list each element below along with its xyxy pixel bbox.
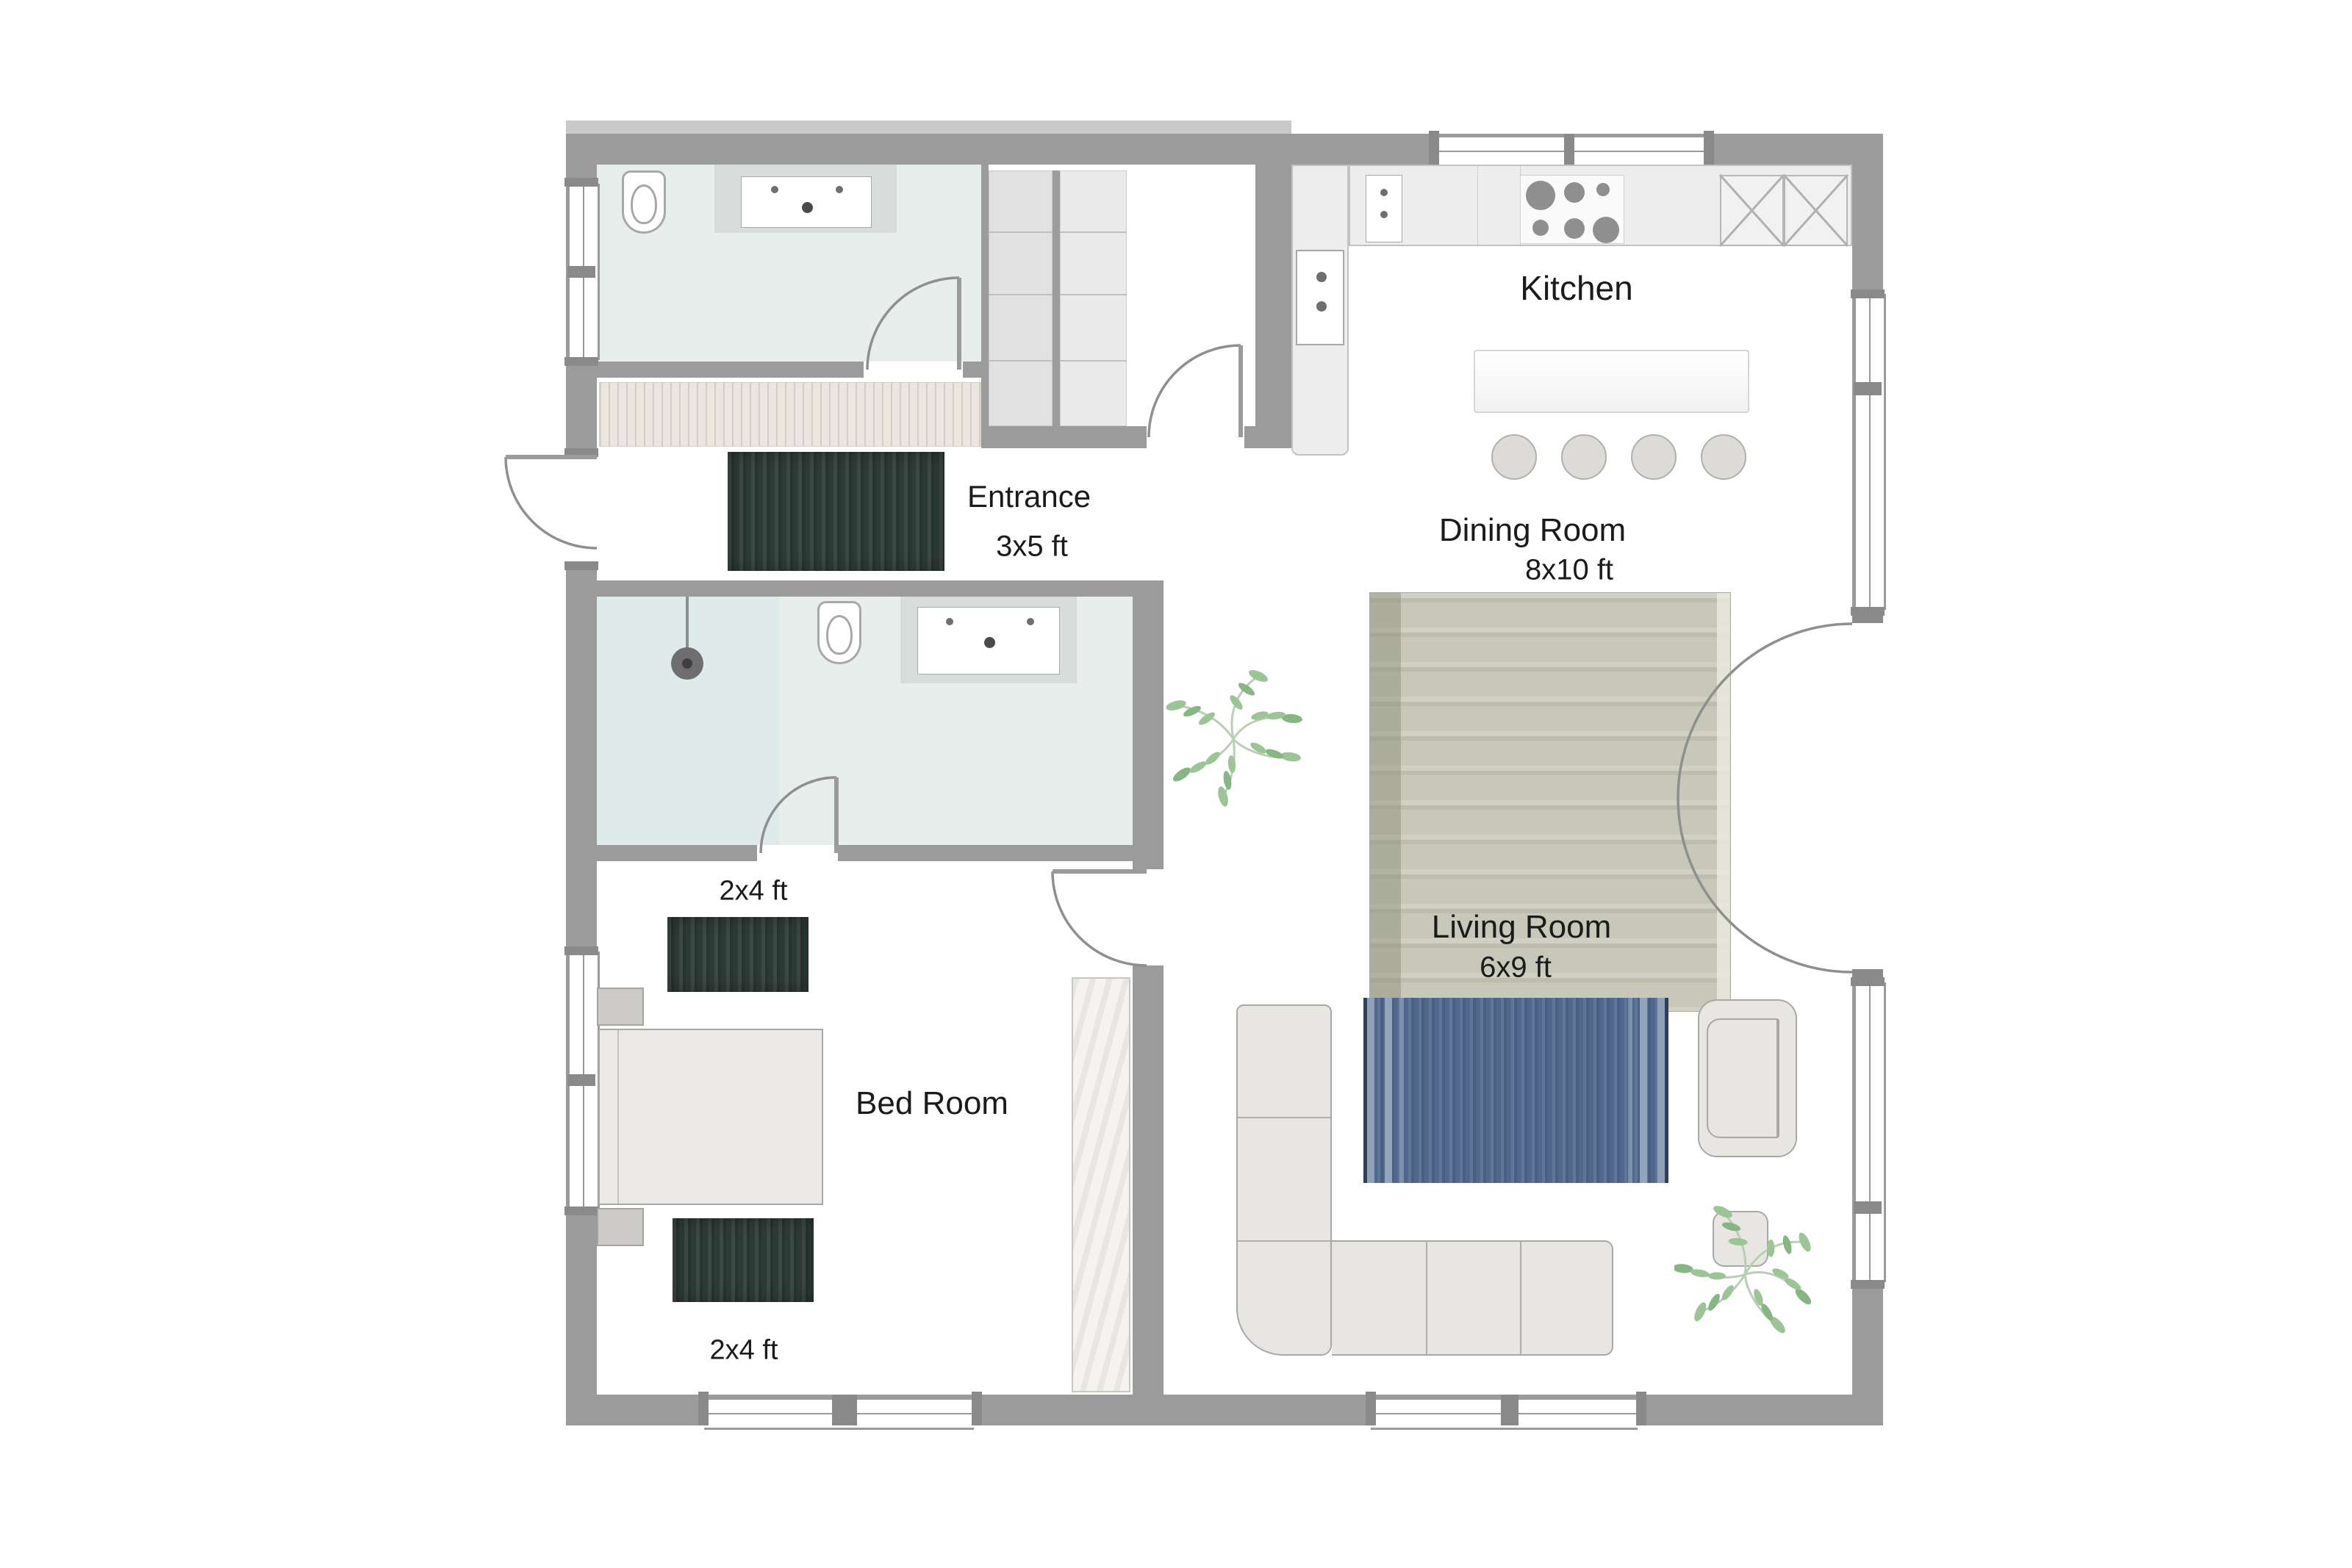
shelf-line [989,360,1053,362]
closet-shelves [989,170,1053,426]
faucet-dot [946,618,953,625]
front-door-opening [566,454,597,564]
dining-rug [1369,592,1731,1012]
wall-bath-ensuite-top [566,580,1164,597]
kitchen-sink [1366,175,1402,242]
sofa-cushion-line [1238,1240,1330,1242]
faucet-dot [1027,618,1034,625]
dining-room-label: Dining Room [1439,512,1626,549]
bedroom-rug-top-size-label: 2x4 ft [720,876,788,907]
faucet-dot [771,186,778,193]
wall-hall-bottom [981,426,1291,448]
wall-hall-kitchen [1255,165,1291,448]
wall-trim [566,121,1291,134]
bedroom-door-opening [1133,869,1164,965]
armchair-seat [1707,1018,1779,1138]
jamb [1851,977,1885,986]
wall-closet-left [981,165,989,448]
living-rug [1363,998,1668,1183]
bedroom-rug-bottom [673,1218,814,1302]
jamb [1852,614,1883,623]
wardrobe [1072,977,1130,1392]
jamb [564,357,598,366]
knob-dot [1316,272,1327,282]
shelf-line [989,231,1053,233]
kitchen-label: Kitchen [1520,268,1632,308]
faucet-dot [1380,189,1388,196]
wall-bath-ensuite-right [1133,580,1164,869]
bedroom-rug-bottom-size-label: 2x4 ft [710,1335,778,1367]
plant-icon [1160,661,1307,808]
knob-dot [1316,301,1327,312]
shelf-line [1060,360,1127,362]
drain-dot [1380,211,1388,218]
entrance-label: Entrance [967,479,1091,514]
bedroom-rug-top [667,917,808,992]
toilet [817,601,861,664]
jamb [832,1395,857,1425]
nightstand [597,988,644,1026]
bed [598,1029,823,1205]
corridor-closet-strip [599,382,981,447]
jamb [1851,1280,1885,1289]
jamb [567,266,595,278]
jamb [1852,969,1883,978]
jamb [564,178,598,187]
shower-head [671,647,703,680]
entrance-rug [728,452,944,571]
jamb [1501,1395,1519,1425]
sectional-sofa-row [1332,1240,1613,1356]
jamb [972,1392,982,1425]
jamb [1704,131,1714,165]
counter-seam [1477,166,1478,245]
shelf-line [989,294,1053,295]
bar-stool [1631,434,1677,480]
drain-dot [984,637,995,648]
wall-closet-mid [1053,170,1060,426]
wall-bedroom-living-divider [1133,965,1164,1395]
bathroom-top-door-opening [864,362,963,378]
pantry-x-cabinet [1720,175,1784,246]
armchair [1698,999,1797,1157]
sofa-cushion-line [1238,1117,1330,1118]
jamb [1366,1392,1376,1425]
headboard-line [617,1030,619,1204]
window-kitchen-right [1854,294,1886,610]
faucet-dot [836,186,843,193]
oven-tower [1296,250,1344,345]
window-living-right [1854,982,1886,1282]
shower-head-center [682,658,692,669]
shelf-line [1060,231,1127,233]
jamb [1429,131,1439,165]
shower-arm [686,597,689,651]
jamb [564,946,598,955]
bar-stool [1561,434,1607,480]
bar-stool [1701,434,1746,480]
pantry-x-cabinet [1784,175,1848,246]
french-door-opening [1852,619,1883,974]
floor-plan: Kitchen Dining Room 8x10 ft Living Room … [0,0,2352,1568]
wall-bath-ensuite-bottom [566,845,1164,861]
sofa-cushion-line [1426,1242,1427,1354]
drain-dot [802,202,813,213]
bathroom-ensuite-door-opening [757,845,838,861]
sofa-cushion-line [1520,1242,1521,1354]
living-room-label: Living Room [1432,909,1612,946]
stove [1520,175,1624,244]
jamb [1854,382,1882,395]
entrance-rug-size-label: 3x5 ft [996,531,1068,564]
closet-shelves [1060,170,1127,426]
jamb [1636,1392,1646,1425]
bar-stool [1491,434,1537,480]
jamb [567,1074,595,1086]
plant-icon [1674,1198,1821,1345]
vanity-sink [741,176,872,228]
shelf-line [1060,294,1127,295]
vanity-sink [917,607,1060,675]
jamb [698,1392,709,1425]
jamb [564,448,598,457]
hall-door-arc [1149,345,1241,437]
kitchen-island [1474,350,1749,413]
jamb [564,1206,598,1215]
living-rug-size-label: 6x9 ft [1480,952,1552,985]
toilet [622,170,666,234]
dining-rug-size-label: 8x10 ft [1525,554,1613,587]
jamb [1851,289,1885,298]
jamb [1854,1201,1882,1214]
nightstand [597,1208,644,1246]
jamb [564,561,598,570]
toilet-bowl [631,184,657,224]
jamb [1564,134,1574,165]
bed-room-label: Bed Room [856,1085,1008,1122]
sectional-sofa-column [1236,1004,1332,1356]
hall-door-opening [1147,426,1244,448]
toilet-bowl [826,615,853,655]
